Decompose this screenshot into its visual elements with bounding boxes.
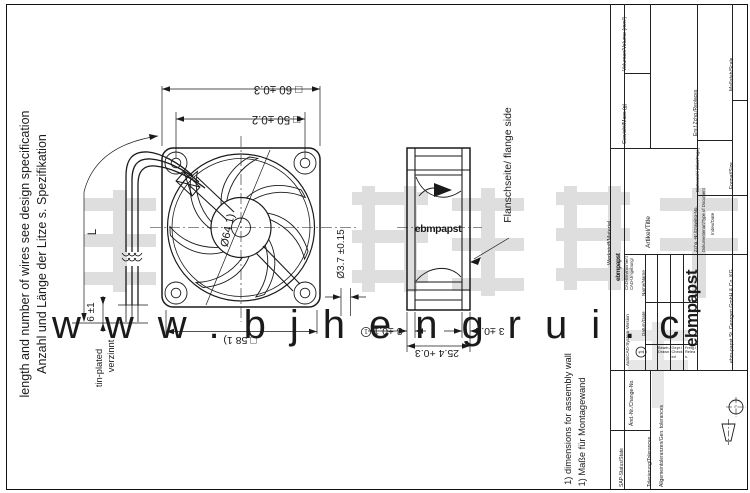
label-cad-version: AutoCAD-System-Version bbox=[626, 314, 631, 366]
label-drawn: Bearb./Drawn bbox=[658, 346, 671, 355]
label-volume: Volumen/Volume (mm³) bbox=[623, 16, 629, 70]
label-doc-type: Dokumentenart/Type of Document bbox=[702, 188, 707, 252]
label-pages: Blattanzahl (Blatt/Page) bbox=[696, 148, 701, 192]
label-cad-env-en: CAD-Environment bbox=[625, 256, 630, 290]
titleblock-logo-large: ebmpapst bbox=[683, 270, 701, 347]
label-mass: Gewicht/Mass (g) bbox=[623, 103, 629, 143]
label-change-no: Änd.-Nr./Change-No. bbox=[630, 379, 636, 426]
sheet-frame bbox=[6, 4, 748, 490]
label-cad-env-de: CAD-Umgebung/ bbox=[630, 258, 635, 290]
label-gen-tolerances: Allgemeintoleranzen/Gen. tolerances bbox=[660, 405, 666, 487]
label-scale: Maßstab/Scale bbox=[730, 58, 736, 91]
label-released: Freig./Releas. bbox=[685, 346, 698, 359]
label-replaces: Ers.f.Zchg./Replaces bbox=[694, 89, 700, 135]
label-date: Datum/Date bbox=[642, 311, 647, 336]
titleblock-logo-small: ebmpapst bbox=[616, 253, 623, 281]
label-sap-status: SAP-Status/State bbox=[620, 448, 626, 487]
label-drawing-no: Zchg.-Nr./Drawing-No. bbox=[694, 206, 699, 252]
label-material: Werkstoff/Material bbox=[608, 221, 614, 265]
label-checked: Gepr./Checked bbox=[672, 346, 685, 359]
label-tolerances: Tolerierung/Tolerances bbox=[648, 436, 654, 486]
label-index-date: Index/Date bbox=[711, 213, 716, 235]
label-format: Format/Size bbox=[730, 162, 736, 189]
label-name: Name/Name bbox=[642, 270, 647, 296]
label-title: Artikel/Title bbox=[646, 216, 653, 248]
company-name: ebm-papst St. Georgen GmbH & Co. KG bbox=[730, 269, 736, 363]
drawing-sheet: { "sheet": { "watermark_url": "www.bjhen… bbox=[0, 0, 750, 493]
